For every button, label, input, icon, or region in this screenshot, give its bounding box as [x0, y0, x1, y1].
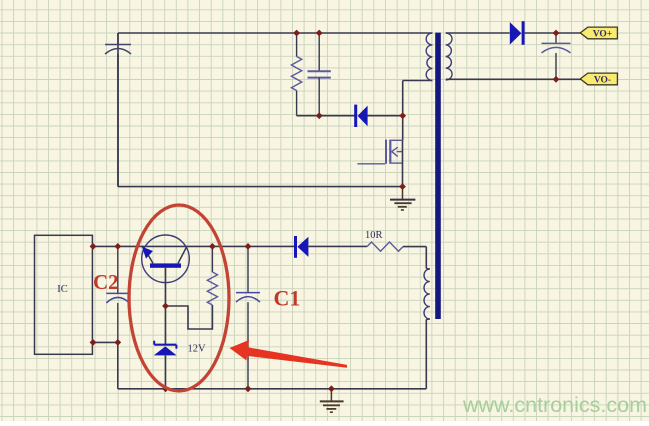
svg-text:VO+: VO+: [593, 29, 612, 39]
svg-text:VO-: VO-: [594, 75, 611, 85]
svg-text:www.cntronics.com: www.cntronics.com: [462, 393, 647, 417]
svg-text:C2: C2: [93, 270, 119, 294]
svg-text:C1: C1: [274, 286, 301, 311]
svg-text:IC: IC: [57, 284, 68, 295]
svg-text:10R: 10R: [365, 230, 383, 241]
svg-text:12V: 12V: [188, 344, 207, 355]
